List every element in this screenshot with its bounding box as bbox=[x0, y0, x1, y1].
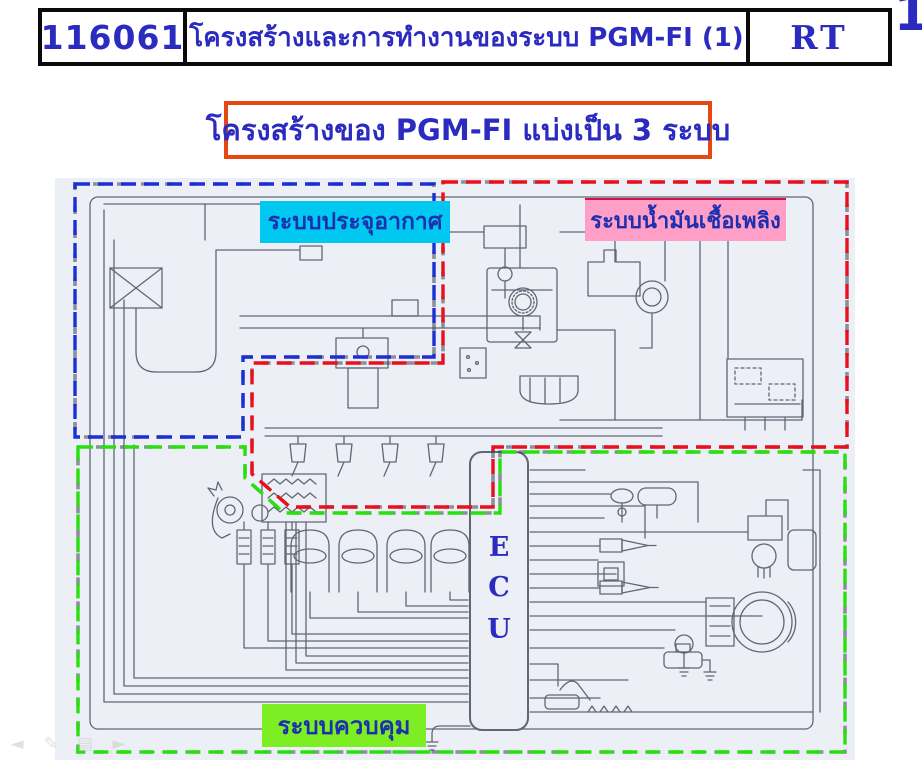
ecu-letter-u: U bbox=[487, 614, 511, 645]
ecu-letter-c: C bbox=[488, 572, 510, 603]
next-slide-icon[interactable]: ► bbox=[108, 733, 130, 755]
previous-slide-icon[interactable]: ◄ bbox=[6, 733, 28, 755]
air-system-label: ระบบประจุอากาศ bbox=[260, 201, 450, 243]
scan-background bbox=[55, 178, 855, 760]
presentation-slide: 116061 โครงสร้างและการทำงานของระบบ PGM-F… bbox=[0, 0, 922, 767]
ecu-letter-e: E bbox=[489, 532, 510, 563]
control-system-label-text: ระบบควบคุม bbox=[278, 706, 411, 745]
slide-menu-icon[interactable]: ▤ bbox=[74, 733, 96, 755]
header-title: โครงสร้างและการทำงานของระบบ PGM-FI (1) bbox=[187, 12, 750, 62]
pen-tool-icon[interactable]: ✎ bbox=[40, 733, 62, 755]
pgm-fi-schematic: E C U bbox=[40, 168, 892, 767]
air-system-label-text: ระบบประจุอากาศ bbox=[268, 204, 443, 240]
fuel-system-label: ระบบน้ำมันเชื้อเพลิง bbox=[585, 198, 786, 241]
heading-box: โครงสร้างของ PGM-FI แบ่งเป็น 3 ระบบ bbox=[224, 101, 712, 159]
control-system-label: ระบบควบคุม bbox=[262, 704, 426, 747]
header-badge: RT bbox=[750, 12, 888, 62]
page-number: 1 bbox=[894, 0, 922, 42]
lesson-code: 116061 bbox=[42, 12, 187, 62]
heading-text: โครงสร้างของ PGM-FI แบ่งเป็น 3 ระบบ bbox=[206, 107, 730, 153]
fuel-system-label-text: ระบบน้ำมันเชื้อเพลิง bbox=[590, 203, 780, 238]
presenter-nav: ◄ ✎ ▤ ► bbox=[6, 733, 130, 755]
header-bar: 116061 โครงสร้างและการทำงานของระบบ PGM-F… bbox=[38, 8, 892, 66]
